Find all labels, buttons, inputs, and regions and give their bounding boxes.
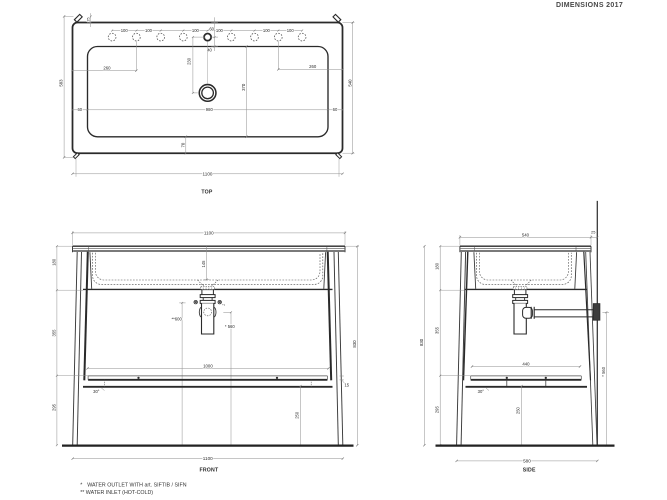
- svg-text:70: 70: [180, 142, 185, 147]
- svg-text:1100: 1100: [204, 230, 214, 235]
- svg-text:830: 830: [419, 338, 424, 346]
- svg-text:100: 100: [192, 28, 200, 33]
- svg-text:** WATER INLET (HOT-COLD): ** WATER INLET (HOT-COLD): [80, 490, 153, 496]
- svg-text:**600: **600: [172, 317, 183, 322]
- svg-text:100: 100: [287, 28, 295, 33]
- svg-text:295: 295: [51, 403, 56, 411]
- svg-text:WATER OUTLET WITH art. SIFTIB: WATER OUTLET WITH art. SIFTIB / SIFN: [87, 482, 187, 488]
- svg-text:TOP: TOP: [201, 189, 213, 195]
- svg-text:100: 100: [121, 28, 129, 33]
- svg-text:355: 355: [435, 326, 440, 334]
- svg-text:260: 260: [309, 64, 317, 69]
- svg-text:100: 100: [145, 28, 153, 33]
- svg-text:60: 60: [333, 107, 338, 112]
- svg-text:100: 100: [216, 28, 224, 33]
- svg-text:30°: 30°: [478, 389, 485, 394]
- svg-text:295: 295: [435, 406, 440, 414]
- svg-text:980: 980: [206, 107, 214, 112]
- svg-text:DIMENSIONS 2017: DIMENSIONS 2017: [556, 2, 623, 9]
- svg-text:370: 370: [241, 83, 246, 91]
- svg-text:60: 60: [77, 107, 82, 112]
- svg-text:1100: 1100: [203, 456, 213, 461]
- svg-text:25: 25: [591, 229, 595, 234]
- svg-text:230: 230: [187, 57, 192, 65]
- svg-text:40: 40: [207, 47, 212, 52]
- svg-text:180: 180: [51, 258, 56, 266]
- svg-text:1000: 1000: [203, 364, 213, 369]
- svg-text:580: 580: [523, 458, 531, 463]
- svg-text:440: 440: [522, 362, 530, 367]
- svg-text:100: 100: [263, 28, 271, 33]
- svg-text:540: 540: [522, 233, 530, 238]
- svg-text:30°: 30°: [93, 389, 100, 394]
- svg-text:15: 15: [344, 382, 349, 387]
- svg-text:*: *: [80, 482, 82, 488]
- svg-text:180: 180: [435, 262, 440, 270]
- svg-text:583: 583: [59, 79, 64, 87]
- svg-text:355: 355: [51, 329, 56, 337]
- svg-text:260: 260: [103, 65, 111, 70]
- svg-text:SIDE: SIDE: [523, 468, 536, 474]
- svg-text:540: 540: [347, 79, 352, 87]
- svg-text:60: 60: [209, 26, 214, 31]
- svg-text:830: 830: [352, 340, 357, 348]
- svg-text:250: 250: [515, 406, 520, 414]
- svg-text:1100: 1100: [203, 171, 213, 176]
- svg-text:FRONT: FRONT: [199, 468, 218, 474]
- svg-text:25: 25: [86, 17, 91, 21]
- svg-text:145: 145: [201, 260, 206, 268]
- svg-text:* 560: * 560: [225, 324, 235, 329]
- svg-text:* 560: * 560: [601, 366, 606, 376]
- svg-text:250: 250: [294, 411, 299, 419]
